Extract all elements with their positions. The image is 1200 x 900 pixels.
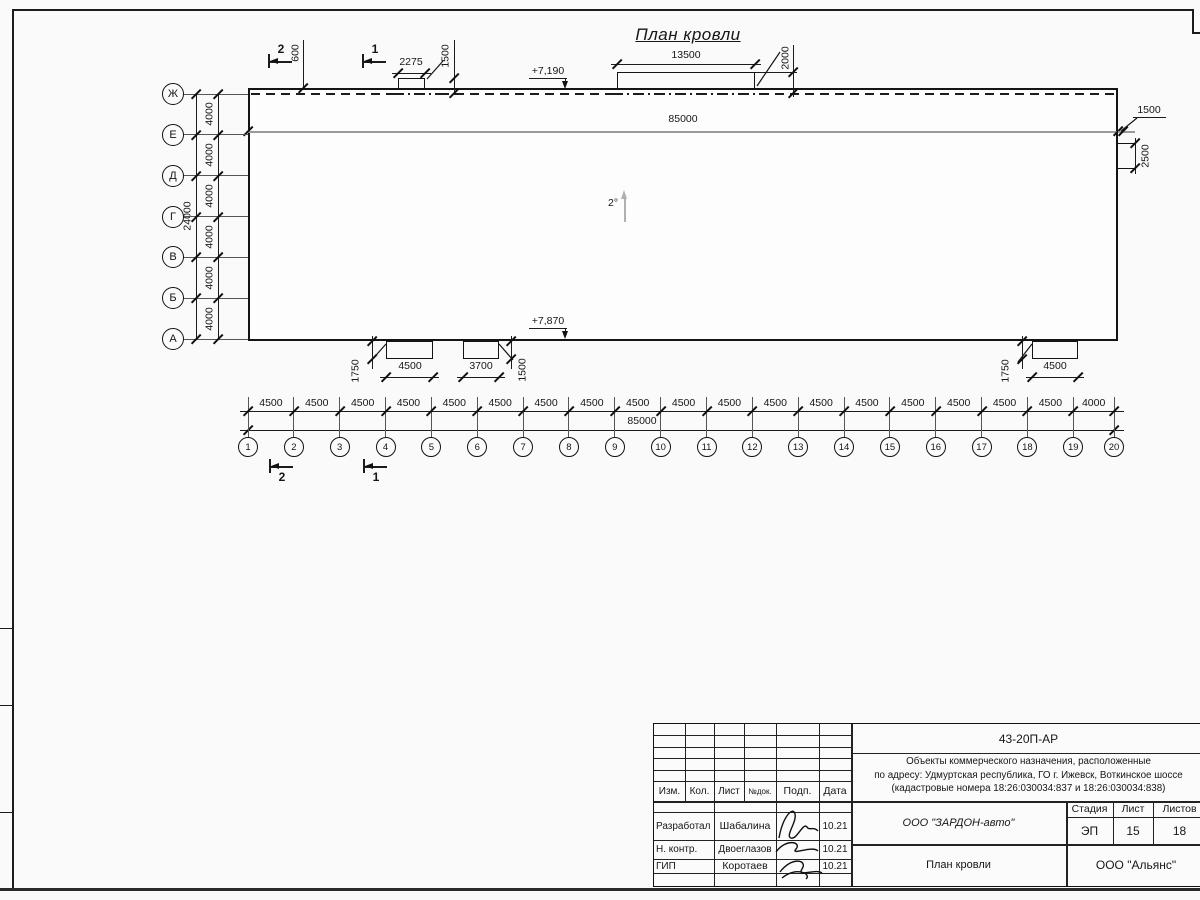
tb-name-developer: Шабалина [714,812,776,840]
col-axis-line [248,397,249,437]
tb-col-doc: №док. [744,781,776,801]
col-spacing-label: 4500 [305,398,328,409]
tb-line [654,770,851,771]
col-axis-line [752,397,753,437]
col-spacing-label: 4500 [534,398,557,409]
tb-role-ncontrol: Н. контр. [656,840,714,859]
col-spacing-label: 4000 [1082,398,1105,409]
tb-col-data: Дата [819,781,851,801]
tb-name-ncontrol: Двоеглазов [714,840,776,859]
col-axis-circle-12: 12 [742,437,762,457]
col-spacing-label: 4500 [626,398,649,409]
col-axis-circle-4: 4 [376,437,396,457]
col-axis-circle-16: 16 [926,437,946,457]
tb-company: ООО "Альянс" [1066,844,1200,886]
col-axis-circle-18: 18 [1017,437,1037,457]
col-axis-circle-10: 10 [651,437,671,457]
row-axis-circle-В: В [162,246,184,268]
col-axis-line [614,397,615,437]
tb-sheet-title: План кровли [851,844,1066,886]
tb-stage-header: Стадия [1066,801,1113,817]
row-axis-circle-Ж: Ж [162,83,184,105]
col-axis-circle-15: 15 [880,437,900,457]
col-axis-circle-19: 19 [1063,437,1083,457]
col-axis-line [981,397,982,437]
tb-project-line2: по адресу: Удмуртская республика, ГО г. … [851,769,1200,783]
col-axis-line [293,397,294,437]
tb-col-izm: Изм. [654,781,685,801]
row-axis-circle-Б: Б [162,287,184,309]
col-axis-circle-3: 3 [330,437,350,457]
row-spacing-label: 4000 [205,266,216,289]
row-spacing-label: 4000 [205,184,216,207]
tb-line [654,747,851,748]
col-axis-line [431,397,432,437]
col-axis-circle-14: 14 [834,437,854,457]
tb-list-header: Лист [1113,801,1153,817]
row-spacing-label: 4000 [205,225,216,248]
col-axis-line [935,397,936,437]
col-spacing-label: 4500 [809,398,832,409]
col-axis-line [1073,397,1074,437]
col-axis-line [1027,397,1028,437]
col-axis-line [477,397,478,437]
col-spacing-label: 4500 [580,398,603,409]
title-block: Изм. Кол. Лист №док. Подп. Дата Разработ… [653,723,1200,887]
row-spacing-label: 4000 [205,103,216,126]
col-axis-line [568,397,569,437]
col-spacing-label: 4500 [259,398,282,409]
col-spacing-label: 4500 [947,398,970,409]
row-spacing-label: 4000 [205,307,216,330]
tb-line [654,735,851,736]
col-spacing-label: 4500 [351,398,374,409]
tb-listov-header: Листов [1153,801,1200,817]
tb-line [654,758,851,759]
tb-stage-value: ЭП [1066,817,1113,844]
col-spacing-label: 4500 [1039,398,1062,409]
tb-list-value: 15 [1113,817,1153,844]
col-axis-circle-5: 5 [421,437,441,457]
col-axis-circle-8: 8 [559,437,579,457]
col-axis-circle-7: 7 [513,437,533,457]
col-spacing-label: 4500 [993,398,1016,409]
row-axis-circle-Е: Е [162,124,184,146]
col-spacing-label: 4500 [488,398,511,409]
col-axis-circle-13: 13 [788,437,808,457]
signature-gip [772,836,824,882]
tb-col-kol: Кол. [685,781,714,801]
tb-line [654,801,851,803]
col-axis-line [385,397,386,437]
col-axis-circle-9: 9 [605,437,625,457]
tb-client: ООО "ЗАРДОН-авто" [851,801,1066,844]
col-axis-circle-11: 11 [697,437,717,457]
tb-col-list: Лист [714,781,744,801]
col-axis-circle-1: 1 [238,437,258,457]
col-axis-line [844,397,845,437]
tb-line [851,753,1200,754]
row-axis-circle-Д: Д [162,165,184,187]
col-spacing-label: 4500 [855,398,878,409]
col-spacing-label: 4500 [901,398,924,409]
row-spacing-label: 4000 [205,144,216,167]
col-axis-circle-20: 20 [1104,437,1124,457]
tb-col-podp: Подп. [776,781,819,801]
col-spacing-label: 4500 [718,398,741,409]
tb-role-gip: ГИП [656,859,714,873]
col-axis-circle-6: 6 [467,437,487,457]
tb-project-line3: (кадастровые номера 18:26:030034:837 и 1… [851,782,1200,796]
col-axis-line [706,397,707,437]
col-axis-line [889,397,890,437]
col-spacing-label: 4500 [443,398,466,409]
col-axis-circle-17: 17 [972,437,992,457]
col-spacing-label: 4500 [764,398,787,409]
col-axis-circle-2: 2 [284,437,304,457]
col-axis-line [660,397,661,437]
col-spacing-label: 4500 [672,398,695,409]
tb-name-gip: Коротаев [714,859,776,873]
tb-doc-number: 43-20П-АР [851,724,1200,753]
tb-listov-value: 18 [1153,817,1200,844]
tb-project-name: Объекты коммерческого назначения, распол… [851,755,1200,800]
col-spacing-label: 4500 [397,398,420,409]
row-axis-circle-А: А [162,328,184,350]
tb-role-developer: Разработал [656,812,714,840]
col-axis-line [1114,397,1115,437]
col-axis-line [523,397,524,437]
col-axis-line [798,397,799,437]
row-axis-circle-Г: Г [162,206,184,228]
col-axis-line [339,397,340,437]
tb-project-line1: Объекты коммерческого назначения, распол… [851,755,1200,769]
